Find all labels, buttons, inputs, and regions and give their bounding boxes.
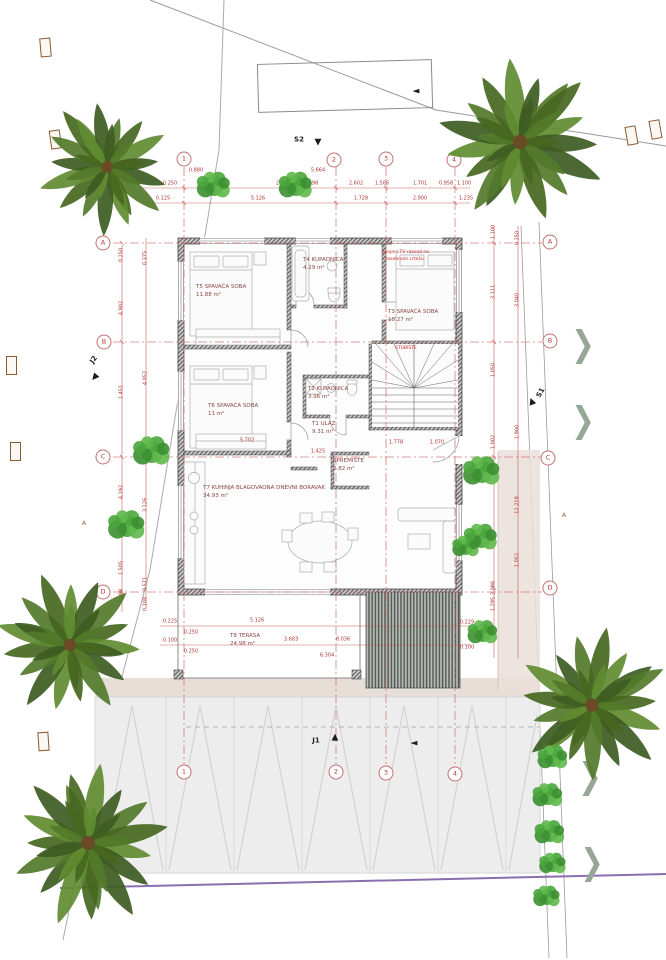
bush bbox=[108, 510, 144, 538]
floor-plan-canvas: 0.8805.6640.2501.4012.2626.4982.6021.586… bbox=[0, 0, 666, 960]
bush bbox=[197, 172, 230, 198]
bush bbox=[133, 436, 169, 464]
palm-tree bbox=[493, 607, 666, 808]
vegetation-layer bbox=[0, 0, 666, 960]
bush bbox=[279, 172, 312, 198]
bush bbox=[533, 886, 559, 907]
palm-tree bbox=[0, 540, 175, 749]
bush bbox=[463, 456, 499, 484]
palm-tree bbox=[409, 30, 636, 254]
bush bbox=[533, 783, 563, 806]
bush bbox=[539, 853, 565, 874]
bush bbox=[535, 820, 565, 843]
palm-tree bbox=[29, 92, 184, 250]
bush bbox=[468, 620, 498, 643]
palm-tree bbox=[0, 733, 201, 958]
